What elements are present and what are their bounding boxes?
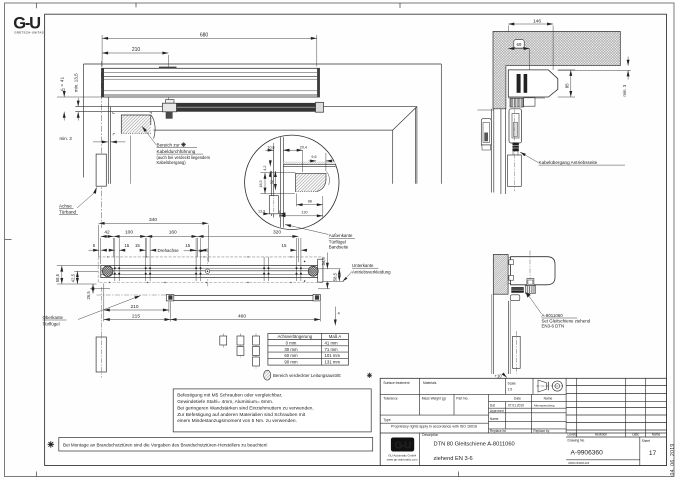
svg-text:Türflügel: Türflügel <box>329 239 346 244</box>
svg-text:ziehend EN 3-6: ziehend EN 3-6 <box>434 456 473 462</box>
svg-text:Name: Name <box>544 397 553 401</box>
svg-text:Türflügel: Türflügel <box>43 321 60 326</box>
svg-text:Kabeldurchführung: Kabeldurchführung <box>157 149 196 154</box>
svg-text:07.01.2019: 07.01.2019 <box>508 404 524 408</box>
svg-text:Antriebsverkleidung: Antriebsverkleidung <box>352 269 391 274</box>
svg-text:Befestigung mit M5 Schrauben o: Befestigung mit M5 Schrauben oder vergle… <box>177 393 282 399</box>
svg-text:1:5: 1:5 <box>508 388 513 392</box>
svg-text:4,2: 4,2 <box>263 166 267 171</box>
svg-text:Date: Date <box>514 397 521 401</box>
svg-text:Zur Befestigung auf anderen Ma: Zur Befestigung auf anderen Materialien … <box>177 412 306 418</box>
svg-text:131 mm: 131 mm <box>325 360 341 365</box>
svg-text:Levels: Levels <box>568 432 578 436</box>
svg-text:04. 06. 2019: 04. 06. 2019 <box>670 443 676 475</box>
svg-text:0 mm: 0 mm <box>286 341 297 346</box>
svg-text:460: 460 <box>238 313 246 319</box>
svg-text:60 mm: 60 mm <box>284 353 298 358</box>
svg-text:160: 160 <box>169 230 177 236</box>
svg-text:215: 215 <box>132 313 140 319</box>
svg-text:A-9906360: A-9906360 <box>571 450 604 457</box>
svg-text:18,3: 18,3 <box>259 180 263 187</box>
svg-text:Proprietary rights apply in ac: Proprietary rights apply in accordance w… <box>391 425 477 429</box>
svg-text:Approved: Approved <box>490 409 504 413</box>
svg-text:15: 15 <box>135 243 140 248</box>
svg-text:Name: Name <box>652 432 661 436</box>
svg-text:min. 3: min. 3 <box>622 84 627 96</box>
svg-text:120: 120 <box>301 211 307 215</box>
svg-text:GRETSCH-UNITAS: GRETSCH-UNITAS <box>14 30 44 34</box>
svg-text:Date: Date <box>632 432 639 436</box>
svg-text:Gewindetiefe Stahl= 4mm, Alumi: Gewindetiefe Stahl= 4mm, Aluminium= 6mm. <box>177 399 273 405</box>
svg-text:42,5: 42,5 <box>71 273 76 282</box>
svg-text:DTN 80 Gleitschiene A-8011060: DTN 80 Gleitschiene A-8011060 <box>434 442 515 448</box>
svg-text:G-U: G-U <box>395 441 412 452</box>
svg-text:Achsverlängerung: Achsverlängerung <box>277 334 312 339</box>
svg-text:Drawing No.: Drawing No. <box>568 438 586 442</box>
svg-text:Bandseite: Bandseite <box>329 245 349 250</box>
svg-text:30 mm: 30 mm <box>284 347 298 352</box>
svg-text:90 mm: 90 mm <box>284 360 298 365</box>
svg-text:DRW-NORM-024: DRW-NORM-024 <box>568 461 589 465</box>
svg-text:EN3-6 DTN: EN3-6 DTN <box>542 324 565 329</box>
svg-text:41 mm: 41 mm <box>325 341 339 346</box>
svg-text:Materials: Materials <box>423 381 437 385</box>
svg-text:Scale: Scale <box>508 382 516 386</box>
svg-text:58,5: 58,5 <box>333 272 338 281</box>
svg-text:Replace by: Replace by <box>533 429 549 433</box>
svg-text:320: 320 <box>273 230 281 236</box>
svg-text:A = 41: A = 41 <box>59 76 64 91</box>
svg-text:A-8011060: A-8011060 <box>542 313 564 318</box>
svg-text:146: 146 <box>533 18 541 24</box>
svg-text:Bei Montage an Brandschutztüre: Bei Montage an Brandschutztüren sind die… <box>63 443 268 448</box>
svg-text:Set Gleitschiene ziehend: Set Gleitschiene ziehend <box>542 318 591 323</box>
svg-text:52: 52 <box>270 180 274 184</box>
svg-text:Türband: Türband <box>59 209 77 214</box>
svg-text:15: 15 <box>124 243 129 248</box>
svg-text:13,9: 13,9 <box>258 210 265 214</box>
svg-text:58,5: 58,5 <box>55 273 60 282</box>
svg-text:Revision: Revision <box>595 432 607 436</box>
svg-text:Mass Weight (g): Mass Weight (g) <box>422 396 446 400</box>
svg-text:Type: Type <box>383 418 390 422</box>
svg-text:680: 680 <box>200 32 209 38</box>
svg-text:Bei geringeren Wandstärken sin: Bei geringeren Wandstärken sind Einziehm… <box>177 405 314 411</box>
svg-text:GU Automatic GmbH: GU Automatic GmbH <box>388 453 416 457</box>
svg-text:Description: Description <box>422 433 438 437</box>
svg-text:9,6: 9,6 <box>311 155 316 159</box>
svg-text:20,4: 20,4 <box>300 145 307 149</box>
svg-text:98: 98 <box>308 200 312 204</box>
svg-text:einem Mindestanzugsmoment von: einem Mindestanzugsmoment von 5 Nm. zu v… <box>177 418 297 424</box>
svg-text:Unterkante: Unterkante <box>352 263 374 268</box>
svg-text:Außenkante: Außenkante <box>329 233 353 238</box>
svg-text:15: 15 <box>185 243 190 248</box>
svg-text:Dat: Dat <box>490 404 495 408</box>
svg-text:Part No.: Part No. <box>456 396 468 400</box>
svg-text:Drehachse: Drehachse <box>158 248 180 253</box>
svg-text:101 mm: 101 mm <box>325 353 341 358</box>
svg-text:15: 15 <box>282 243 287 248</box>
svg-text:Bereich zur: Bereich zur <box>157 142 181 147</box>
svg-text:Maß A: Maß A <box>329 334 342 339</box>
svg-text:17: 17 <box>649 450 657 457</box>
svg-text:34,5: 34,5 <box>321 257 326 266</box>
svg-text:Bereich verdeckter Leitungsaus: Bereich verdeckter Leitungsaustritt <box>273 373 341 378</box>
svg-text:340: 340 <box>149 217 157 223</box>
svg-text:Sheet: Sheet <box>642 439 650 443</box>
svg-text:Kabelübergang Antriebsseite: Kabelübergang Antriebsseite <box>539 160 598 165</box>
svg-text:210: 210 <box>130 304 138 310</box>
svg-text:Replace for: Replace for <box>490 429 507 433</box>
svg-text:42: 42 <box>104 230 110 236</box>
svg-text:Achse: Achse <box>59 203 72 208</box>
svg-text:71 mm: 71 mm <box>325 347 339 352</box>
svg-text:69: 69 <box>517 42 522 47</box>
svg-text:26,5: 26,5 <box>86 291 91 300</box>
svg-text:min. 13,5: min. 13,5 <box>73 73 78 92</box>
svg-text:Surface treatment: Surface treatment <box>383 381 409 385</box>
svg-text:Altenspeuchteg: Altenspeuchteg <box>534 404 555 408</box>
svg-text:85: 85 <box>565 83 570 88</box>
svg-text:Kabelübergang): Kabelübergang) <box>157 160 187 165</box>
svg-text:+10: +10 <box>495 373 503 378</box>
svg-text:min. 3: min. 3 <box>60 136 73 141</box>
svg-text:www.gu-automatic.com: www.gu-automatic.com <box>387 458 419 462</box>
svg-text:Name: Name <box>490 417 499 421</box>
svg-text:Tolerance: Tolerance <box>383 396 397 400</box>
svg-text:100: 100 <box>125 230 133 236</box>
svg-text:Oberkante: Oberkante <box>43 315 64 320</box>
svg-text:210: 210 <box>132 47 141 53</box>
